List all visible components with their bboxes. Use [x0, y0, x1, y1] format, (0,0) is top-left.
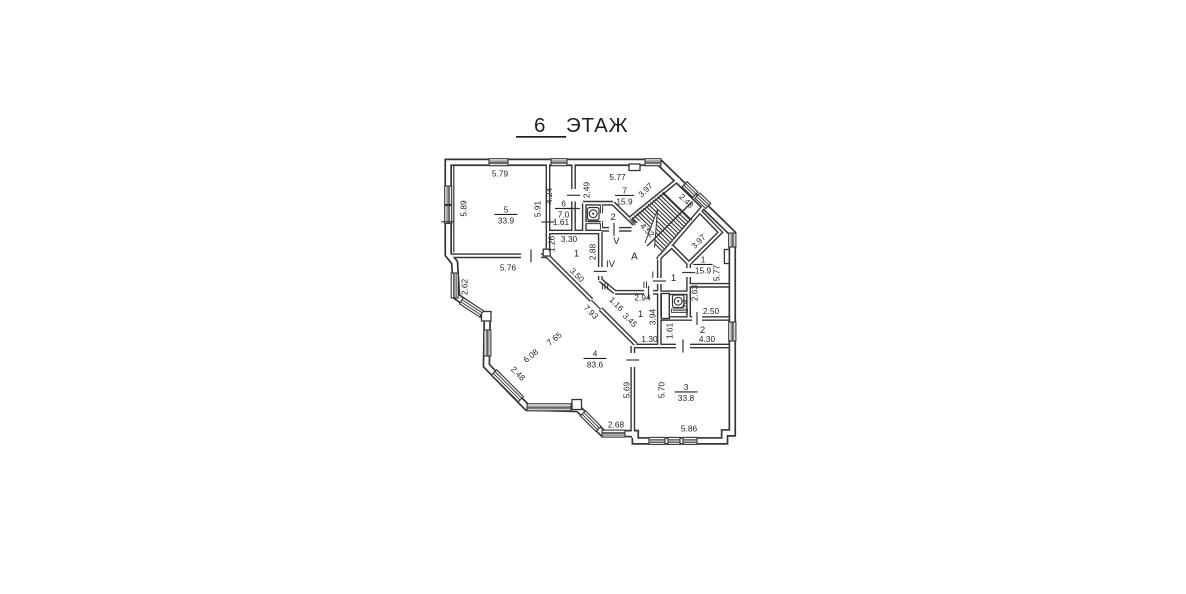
svg-text:III: III: [601, 282, 609, 293]
svg-text:I: I: [651, 270, 654, 281]
svg-text:1: 1: [671, 273, 676, 284]
svg-text:33.9: 33.9: [498, 215, 515, 225]
svg-text:33.8: 33.8: [678, 393, 695, 403]
svg-text:7.0: 7.0: [558, 209, 570, 219]
svg-text:5.77: 5.77: [712, 265, 722, 282]
svg-text:2: 2: [700, 325, 705, 336]
svg-text:5.86: 5.86: [681, 424, 698, 434]
svg-text:5.89: 5.89: [458, 200, 468, 217]
svg-text:2: 2: [682, 299, 687, 310]
svg-text:2.50: 2.50: [703, 306, 720, 316]
svg-text:5.76: 5.76: [500, 263, 517, 273]
svg-text:2.88: 2.88: [588, 244, 598, 261]
svg-text:4.24: 4.24: [544, 188, 554, 205]
svg-text:83.6: 83.6: [587, 359, 604, 369]
svg-text:4: 4: [593, 348, 598, 358]
svg-text:5.69: 5.69: [622, 382, 632, 399]
svg-text:15.9: 15.9: [695, 265, 712, 275]
svg-text:5.70: 5.70: [657, 382, 667, 399]
svg-text:6: 6: [561, 198, 566, 208]
svg-text:5.79: 5.79: [492, 169, 509, 179]
svg-text:2.62: 2.62: [460, 279, 470, 296]
svg-text:3.30: 3.30: [561, 234, 578, 244]
svg-text:II: II: [643, 280, 648, 291]
svg-text:5: 5: [504, 204, 509, 214]
svg-text:3.94: 3.94: [648, 309, 658, 326]
svg-text:1: 1: [574, 249, 579, 260]
svg-text:7: 7: [622, 185, 627, 195]
svg-text:1: 1: [701, 254, 706, 264]
svg-text:2.94: 2.94: [634, 293, 651, 303]
svg-text:2: 2: [610, 212, 615, 223]
svg-text:1.61: 1.61: [665, 323, 675, 340]
svg-text:5.91: 5.91: [533, 201, 543, 218]
svg-text:A: A: [631, 252, 638, 263]
svg-text:1: 1: [638, 309, 643, 320]
svg-text:2.63: 2.63: [690, 285, 700, 302]
svg-text:IV: IV: [606, 259, 616, 270]
svg-text:15.9: 15.9: [616, 196, 633, 206]
svg-text:2.68: 2.68: [608, 420, 625, 430]
svg-text:6: 6: [534, 114, 545, 137]
svg-text:5.77: 5.77: [609, 172, 626, 182]
svg-text:V: V: [613, 236, 620, 247]
svg-text:3: 3: [684, 382, 689, 392]
svg-text:1.26: 1.26: [547, 236, 557, 253]
svg-text:1.30: 1.30: [641, 334, 658, 344]
svg-text:2.49: 2.49: [582, 182, 592, 199]
svg-text:ЭТАЖ: ЭТАЖ: [566, 114, 628, 137]
